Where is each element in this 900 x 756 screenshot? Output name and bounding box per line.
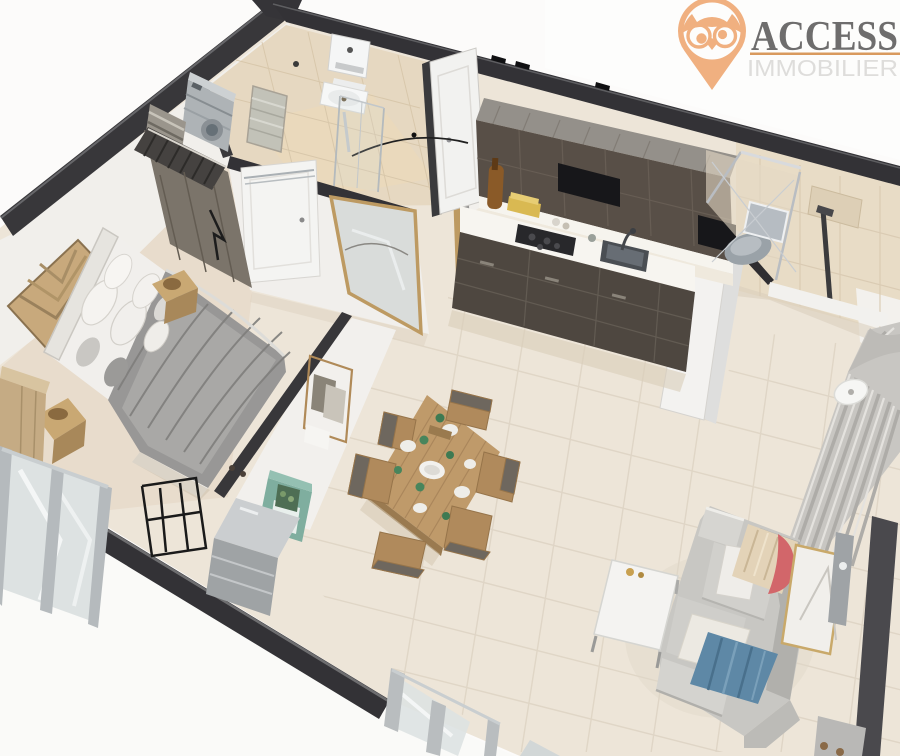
svg-text:IMMOBILIER: IMMOBILIER xyxy=(747,55,898,81)
